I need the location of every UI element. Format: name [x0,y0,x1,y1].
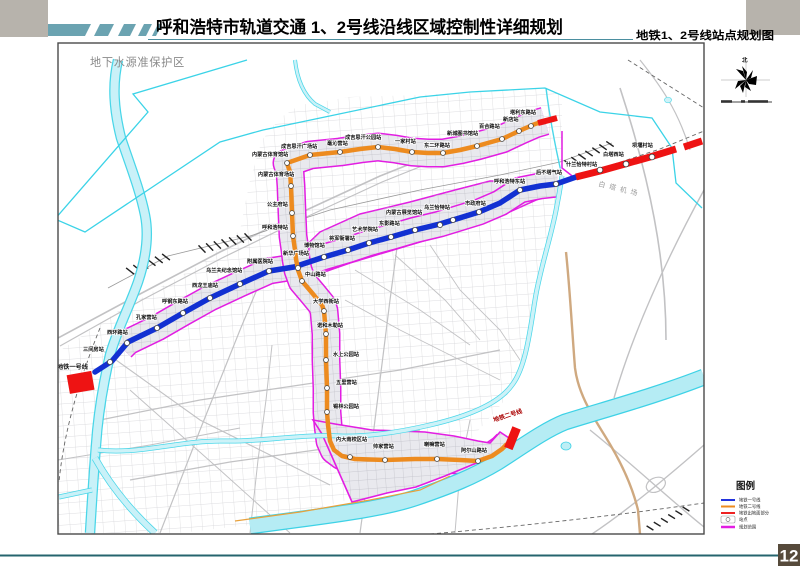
svg-text:阿尔山路站: 阿尔山路站 [461,446,488,454]
svg-text:呼和浩特站: 呼和浩特站 [262,223,289,231]
svg-text:地铁一号线: 地铁一号线 [739,497,761,504]
svg-text:公主府站: 公主府站 [267,200,289,208]
svg-text:地铁一号线: 地铁一号线 [57,363,89,371]
svg-text:附属医院站: 附属医院站 [247,257,274,265]
svg-text:呼和浩特市轨道交通 1、2号线沿线区域控制性详细规划: 呼和浩特市轨道交通 1、2号线沿线区域控制性详细规划 [156,17,563,37]
svg-text:塔利东路站: 塔利东路站 [510,108,537,116]
svg-text:地铁二号线: 地铁二号线 [739,503,761,510]
svg-text:图例: 图例 [736,480,755,492]
svg-text:地下水源准保护区: 地下水源准保护区 [90,55,185,69]
svg-text:北: 北 [742,56,748,64]
svg-text:五里营站: 五里营站 [336,378,358,386]
svg-text:喇嘛营站: 喇嘛营站 [424,440,446,448]
svg-text:博物馆站: 博物馆站 [304,241,326,249]
svg-text:白塔西站: 白塔西站 [603,150,625,158]
svg-text:三间房站: 三间房站 [83,345,105,353]
svg-text:大学西街站: 大学西街站 [313,297,340,305]
svg-text:新店站: 新店站 [503,115,519,123]
svg-text:中山路站: 中山路站 [305,270,327,278]
svg-text:坝堰村站: 坝堰村站 [632,141,654,149]
svg-text:艺术学院站: 艺术学院站 [352,225,379,233]
svg-text:成吉思汗广场站: 成吉思汗广场站 [281,142,318,150]
svg-text:百合路站: 百合路站 [479,122,501,130]
svg-text:诺和木勒站: 诺和木勒站 [317,321,344,329]
svg-text:孔家营站: 孔家营站 [136,313,158,321]
svg-text:市政府站: 市政府站 [465,199,487,207]
svg-text:乌兰夫纪念馆站: 乌兰夫纪念馆站 [206,266,243,274]
svg-text:规划范围: 规划范围 [739,524,756,531]
svg-text:内蒙古体育场站: 内蒙古体育场站 [258,170,295,178]
svg-text:地铁出地面部分: 地铁出地面部分 [739,510,770,517]
svg-text:一家村站: 一家村站 [395,137,417,145]
svg-text:东二环路站: 东二环路站 [424,141,451,149]
svg-text:将军衙署站: 将军衙署站 [329,234,356,242]
svg-text:新城图书馆站: 新城图书馆站 [447,129,479,137]
svg-text:呼和浩特东站: 呼和浩特东站 [494,177,526,185]
svg-text:内蒙古展览馆站: 内蒙古展览馆站 [386,208,423,216]
svg-text:呼钢东路站: 呼钢东路站 [162,297,189,305]
svg-text:东影路站: 东影路站 [379,219,401,227]
svg-text:新华广场站: 新华广场站 [283,249,310,257]
svg-text:内蒙古体育馆站: 内蒙古体育馆站 [252,150,289,158]
svg-text:西龙王庙站: 西龙王庙站 [192,281,219,289]
svg-text:站点: 站点 [739,516,748,523]
svg-text:内大南校区站: 内大南校区站 [336,435,368,443]
svg-text:成吉思汗公园站: 成吉思汗公园站 [345,133,382,141]
svg-text:后不塔气站: 后不塔气站 [536,168,563,176]
svg-text:西环路站: 西环路站 [107,328,129,336]
svg-text:乌兰恰特站: 乌兰恰特站 [424,203,451,211]
svg-text:地铁1、2号线站点规划图: 地铁1、2号线站点规划图 [636,28,774,42]
svg-text:什兰恰特村站: 什兰恰特村站 [566,160,598,168]
svg-text:锡林公园站: 锡林公园站 [333,402,360,410]
svg-text:帅家营站: 帅家营站 [373,442,395,450]
svg-text:水上公园站: 水上公园站 [333,350,360,358]
svg-text:12: 12 [780,547,799,566]
